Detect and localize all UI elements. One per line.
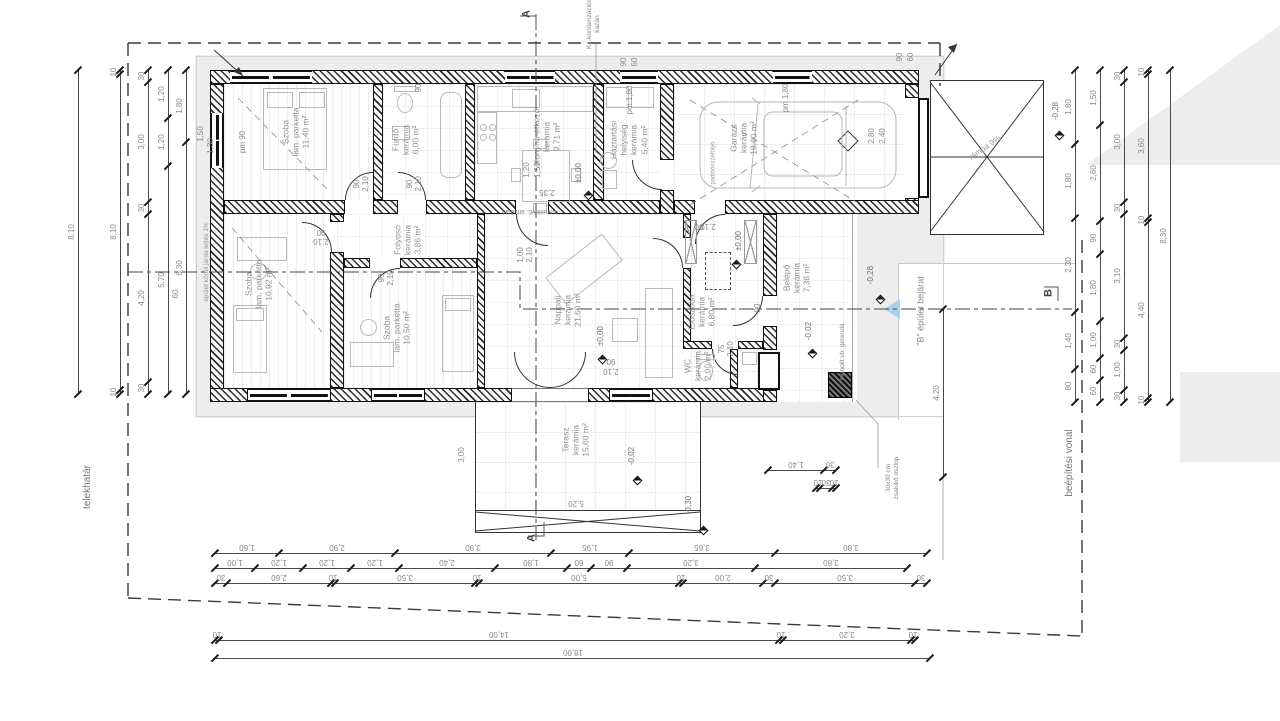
- room-label: Szobalam. parketta11,40 m²: [281, 107, 312, 156]
- dim-label: 5,70: [158, 272, 166, 288]
- dim-label: 2,10: [603, 367, 619, 375]
- dim-label: 10: [1138, 68, 1146, 77]
- wall-segment: [210, 70, 919, 84]
- dim-label: 1,00: [1114, 362, 1122, 378]
- wall-segment: [660, 190, 674, 214]
- dim-label: 2,60: [1090, 165, 1098, 181]
- dim-label: 30: [826, 460, 835, 468]
- dim-label: 10: [473, 573, 482, 581]
- dim-label: 2,10: [727, 341, 735, 357]
- dim-chain: [186, 70, 187, 394]
- dim-label: 3,90: [465, 543, 481, 551]
- dim-label: 90: [896, 53, 904, 62]
- dim-label: 5,20: [568, 499, 584, 507]
- annotation: K1-kondenzációskazán: [586, 0, 602, 49]
- annotation: beépítési vonal: [1064, 429, 1076, 496]
- dim-label: 3,80: [843, 543, 859, 551]
- dim-label: 18,00: [562, 648, 582, 656]
- dim-label: 4,20: [138, 290, 146, 306]
- dim-label: 90: [415, 84, 423, 93]
- dim-chain: [78, 70, 79, 394]
- wall-segment: [660, 84, 674, 160]
- room-label: Szobalam. parketta10,92 m²: [244, 259, 275, 308]
- dim-label: 1,20: [367, 558, 383, 566]
- dim-label: 2,00: [715, 573, 731, 581]
- dim-label: 10: [909, 630, 918, 638]
- wall-segment: [652, 388, 775, 402]
- annotation: "B" épület bejárat: [916, 276, 927, 345]
- dim-label: pm 1,80: [626, 86, 634, 115]
- dim-label: 30: [217, 573, 226, 581]
- dim-tick: [1096, 398, 1104, 406]
- dim-chain: [215, 553, 927, 554]
- dim-chain: [148, 70, 149, 394]
- dim-label: 8,30: [1160, 228, 1168, 244]
- dim-tick: [903, 564, 911, 572]
- dim-label: 60: [575, 558, 584, 566]
- chair: [360, 319, 377, 336]
- garage-door-opening: [905, 98, 919, 198]
- dim-label: 60: [172, 290, 180, 299]
- dim-chain: [215, 583, 927, 584]
- dim-label: 1,20: [319, 558, 335, 566]
- dim-label: 30: [1114, 340, 1122, 349]
- dim-label: 1,40: [788, 460, 804, 468]
- toilet: [397, 93, 413, 113]
- dim-label: 1,00: [227, 558, 243, 566]
- elevation-label: -0,28: [867, 266, 875, 284]
- dim-tick: [74, 390, 82, 398]
- dim-chain: [120, 70, 121, 394]
- room-label: Háztartásihelyiségkerámia5,40 m²: [609, 121, 650, 159]
- dim-label: 90: [317, 228, 326, 236]
- window: [620, 70, 658, 84]
- elevation-label: ±0,00: [597, 326, 605, 346]
- dim-label: 3,00: [458, 447, 466, 463]
- dim-label: 1,80: [1090, 280, 1098, 296]
- wall-segment: [763, 326, 777, 350]
- terrain-shading: [1180, 372, 1280, 462]
- dim-tick: [926, 654, 934, 662]
- pillow: [236, 308, 264, 321]
- room-label: Konyha-étkezőkerámia9,71 m²: [532, 109, 563, 166]
- wall-segment: [465, 84, 475, 200]
- dim-label: 3,00: [1114, 134, 1122, 150]
- dim-label: 90: [1090, 233, 1098, 242]
- dim-label: 10: [1138, 216, 1146, 225]
- elevation-marker: [699, 526, 709, 536]
- wall-segment: [330, 252, 344, 388]
- porch-edge: [852, 214, 853, 402]
- washbasin: [742, 352, 757, 365]
- wall-segment: [477, 214, 485, 388]
- dim-label: 10: [213, 630, 222, 638]
- wall-segment: [763, 214, 777, 296]
- terrace-edge: [700, 402, 701, 533]
- dim-label: 3,50: [837, 573, 853, 581]
- dim-label: 2,35: [539, 188, 555, 196]
- dim-label: 2,10: [362, 176, 370, 192]
- window: [773, 70, 812, 84]
- terrace-edge: [475, 402, 476, 533]
- garage-door-panel: [918, 98, 929, 198]
- dim-tick: [939, 473, 947, 481]
- dim-label: 2,60: [271, 573, 287, 581]
- elevation-label: ±0,00: [735, 231, 743, 251]
- pillow: [267, 92, 293, 108]
- wall-segment: [330, 388, 372, 402]
- dim-label: 3,60: [1138, 138, 1146, 154]
- window: [610, 388, 652, 402]
- dim-label: 3,80: [823, 558, 839, 566]
- stove-burner: [489, 124, 496, 131]
- dim-label: 1,20: [158, 134, 166, 150]
- section-marker: A: [520, 10, 533, 18]
- dim-label: 3,50: [397, 573, 413, 581]
- window: [230, 70, 312, 84]
- entrance-arrow: [884, 299, 900, 319]
- dim-label: 10: [677, 573, 686, 581]
- dim-label: 2,10: [700, 222, 716, 230]
- dim-chain: [1148, 70, 1149, 402]
- dim-label: 1,80: [1065, 99, 1073, 115]
- dim-label: 3,00: [138, 134, 146, 150]
- dim-chain: [943, 309, 944, 477]
- dim-label: 4,40: [1138, 302, 1146, 318]
- entrance-door: [758, 352, 780, 390]
- dim-label: 30: [1114, 392, 1122, 401]
- dim-label: 1,40: [1065, 333, 1073, 349]
- dim-label: 3,20: [839, 630, 855, 638]
- annotation: padlóösszefolyó: [710, 141, 717, 184]
- bathtub: [440, 92, 462, 178]
- dim-label: 1,60: [239, 543, 255, 551]
- dim-label: 90: [378, 274, 386, 283]
- stove-burner: [480, 124, 487, 131]
- dim-label: 90: [620, 58, 628, 67]
- dim-tick: [182, 390, 190, 398]
- stove-burner: [480, 134, 487, 141]
- dim-label: 10: [329, 573, 338, 581]
- room-label: Nappalikerámia21,60 m²: [553, 293, 584, 327]
- garage-apron: [930, 80, 1044, 235]
- dim-label: 60: [907, 53, 915, 62]
- wall-segment: [683, 341, 712, 349]
- dim-label: 2,10: [415, 176, 423, 192]
- dim-label: 30: [917, 573, 926, 581]
- cabinet: [602, 170, 617, 189]
- wall-segment: [373, 200, 398, 214]
- annotation: épület körüli járda lejtés 1%: [203, 222, 211, 302]
- elevation-label: -0,02: [805, 322, 813, 340]
- elevation-marker: [1055, 131, 1065, 141]
- dim-label: 60: [1090, 387, 1098, 396]
- dim-label: 3,65: [694, 543, 710, 551]
- dim-chain: [215, 658, 930, 659]
- room-label: Teraszkerámia15,60 m²: [561, 423, 592, 457]
- dim-label: 1,80: [523, 558, 539, 566]
- annotation: telekhatár: [82, 465, 94, 509]
- room-label: Garázskerámia18,60 m²: [729, 121, 760, 155]
- annotation: monolit vb. gerenda: [839, 323, 847, 380]
- dim-label: 2,90: [329, 543, 345, 551]
- chair: [511, 168, 521, 182]
- terrace-step: [475, 510, 700, 533]
- dim-label: 1,50: [1090, 90, 1098, 106]
- dim-label: 4,20: [933, 385, 941, 401]
- wall-segment: [674, 200, 695, 214]
- attic-hatch: [705, 252, 731, 290]
- wall-segment: [424, 388, 512, 402]
- dim-label: 30: [138, 204, 146, 213]
- dim-label: 5,00: [571, 573, 587, 581]
- dim-label: 6,30: [176, 260, 184, 276]
- room-label: Szobalam. parketta10,50 m²: [382, 303, 413, 352]
- wall-segment: [224, 200, 345, 214]
- dim-label: 90: [353, 180, 361, 189]
- dim-label: 1,00: [517, 247, 525, 263]
- dim-label: 2,40: [879, 128, 887, 144]
- section-marker: A: [525, 534, 538, 542]
- elevation-label: -0,02: [628, 447, 636, 465]
- dim-label: 10: [110, 388, 118, 397]
- section-marker: B: [1042, 289, 1055, 297]
- dim-label: 2,10: [313, 237, 329, 245]
- kitchen-sink: [512, 89, 540, 108]
- dim-label: 90: [754, 304, 762, 313]
- dim-label: 1,80: [1065, 173, 1073, 189]
- dim-label: 3,10: [1114, 268, 1122, 284]
- dim-label: 30: [138, 384, 146, 393]
- wall-segment: [905, 84, 919, 98]
- coffee-table: [612, 318, 638, 342]
- dim-chain: [1075, 70, 1076, 402]
- dim-label: 2,80: [868, 128, 876, 144]
- dim-label: 10: [830, 478, 839, 486]
- elevation-label: ±0,00: [575, 163, 583, 183]
- window: [372, 388, 424, 402]
- dim-label: 2,30: [1065, 257, 1073, 273]
- dim-label: 10: [1138, 396, 1146, 405]
- dim-label: pm 1,80: [782, 84, 790, 113]
- pillow: [445, 298, 471, 311]
- dim-label: 1,20: [158, 86, 166, 102]
- dim-label: 30: [1114, 204, 1122, 213]
- wardrobe: [744, 220, 757, 264]
- stove-burner: [489, 134, 496, 141]
- dim-tick: [923, 549, 931, 557]
- dim-label: 75: [718, 345, 726, 354]
- dim-chain: [215, 568, 907, 569]
- wall-segment: [210, 388, 248, 402]
- dim-label: 1,50: [197, 126, 205, 142]
- dim-label: 14,00: [489, 630, 509, 638]
- dryer: [631, 87, 654, 108]
- dim-label: 2,40: [439, 558, 455, 566]
- dim-label: 1,00: [1090, 332, 1098, 348]
- dim-label: 2,10: [387, 270, 395, 286]
- dim-label: 30: [765, 573, 774, 581]
- window: [248, 388, 330, 402]
- dim-label: 1,80: [176, 98, 184, 114]
- dim-label: 1,30: [207, 138, 215, 154]
- dim-label: 60: [631, 58, 639, 67]
- tv-cabinet: [645, 288, 673, 378]
- dim-chain: [215, 640, 915, 641]
- elevation-label: -0,28: [1052, 102, 1060, 120]
- dim-label: 60: [1090, 365, 1098, 374]
- terrace-door-opening: [512, 388, 588, 402]
- room-label: Fürdőkerámia6,00 m²: [391, 125, 422, 155]
- dim-label: 10: [110, 68, 118, 77]
- wall-segment: [588, 388, 610, 402]
- annotation: 30x30 cmzsalukő oszlop: [885, 457, 901, 500]
- window: [505, 70, 555, 84]
- room-label: Belépőkerámia7,38 m²: [782, 263, 813, 293]
- wall-segment: [763, 390, 777, 402]
- dim-label: 2,10: [526, 247, 534, 263]
- room-label: Folyosókerámia3,86 m²: [393, 225, 424, 255]
- dim-label: 90: [605, 558, 614, 566]
- wall-segment: [344, 258, 370, 268]
- wall-segment: [373, 84, 383, 200]
- wall-segment: [400, 258, 477, 268]
- wall-segment: [548, 200, 660, 214]
- wall-segment: [725, 200, 919, 214]
- dim-chain: [1170, 70, 1171, 402]
- dim-label: 1,20: [523, 162, 531, 178]
- dim-label: 3,20: [683, 558, 699, 566]
- dim-chain: [768, 470, 836, 471]
- dim-tick: [164, 390, 172, 398]
- annotation: monolit vb. áthidaló: [502, 207, 558, 215]
- room-label: Előszobakerámia6,80 m²: [687, 295, 718, 330]
- dim-label: 10: [777, 630, 786, 638]
- dim-tick: [1166, 398, 1174, 406]
- toilet: [394, 86, 416, 92]
- dim-label: 1,95: [582, 543, 598, 551]
- dim-label: 30: [1114, 72, 1122, 81]
- pillow: [299, 92, 325, 108]
- dim-label: 90: [607, 357, 616, 365]
- dim-label: 1,50: [534, 162, 542, 178]
- room-label: WCkerámia2,00 m²: [683, 351, 714, 381]
- elevation-label: -0,30: [685, 496, 693, 514]
- dim-label: 30: [138, 72, 146, 81]
- dim-label: 80: [1065, 381, 1073, 390]
- dim-label: 8,10: [110, 224, 118, 240]
- wall-segment: [330, 214, 344, 222]
- dim-label: 90: [406, 180, 414, 189]
- dim-chain: [1100, 70, 1101, 402]
- wall-segment: [738, 341, 763, 349]
- dim-label: pm 90: [239, 131, 247, 153]
- dim-chain: [1124, 70, 1125, 402]
- dim-label: 8,10: [68, 224, 76, 240]
- dim-label: 1,20: [271, 558, 287, 566]
- floor-plan-canvas: Szobalam. parketta11,40 m²Fürdőkerámia6,…: [0, 0, 1280, 721]
- desk: [237, 237, 287, 261]
